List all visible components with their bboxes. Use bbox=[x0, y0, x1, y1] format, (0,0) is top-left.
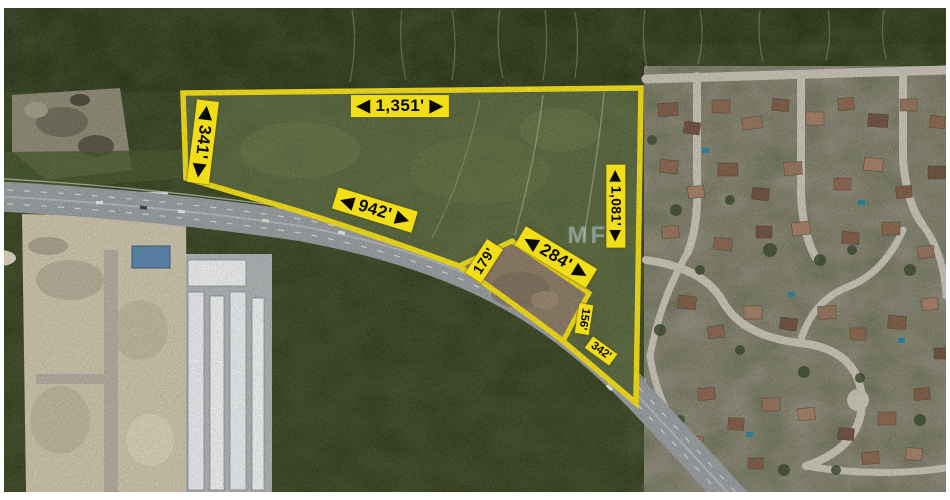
satellite-scene bbox=[4, 8, 946, 492]
satellite-photo bbox=[4, 8, 946, 492]
aerial-parcel-screenshot: { "photo": { "type": "satellite-aerial-v… bbox=[0, 0, 950, 500]
